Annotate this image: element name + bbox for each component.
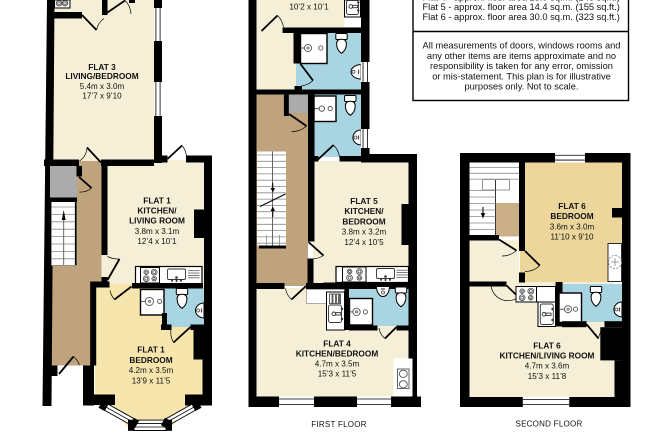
svg-text:or mis-statement. This plan is: or mis-statement. This plan is for illus… [432, 71, 611, 81]
svg-text:LIVING ROOM: LIVING ROOM [129, 216, 185, 226]
svg-text:4.7m x 3.5m: 4.7m x 3.5m [315, 359, 360, 368]
svg-text:5.4m x 3.0m: 5.4m x 3.0m [80, 82, 125, 91]
svg-text:4.7m x 3.6m: 4.7m x 3.6m [525, 362, 570, 371]
svg-text:12’4 x 10’5: 12’4 x 10’5 [344, 238, 384, 247]
svg-text:purposes only. Not to scale.: purposes only. Not to scale. [464, 82, 578, 92]
svg-text:FLAT 1: FLAT 1 [143, 195, 171, 205]
svg-text:FIRST FLOOR: FIRST FLOOR [311, 420, 367, 429]
svg-text:LIVING/BEDROOM: LIVING/BEDROOM [65, 71, 138, 81]
svg-text:3.8m x 3.2m: 3.8m x 3.2m [342, 228, 387, 237]
svg-text:BEDROOM: BEDROOM [342, 216, 385, 226]
svg-text:3.8m x 3.1m: 3.8m x 3.1m [135, 227, 180, 236]
svg-text:any other items are items appr: any other items are items approximate an… [427, 51, 616, 61]
svg-text:11’10 x 9’10: 11’10 x 9’10 [550, 233, 594, 242]
svg-text:SECOND FLOOR: SECOND FLOOR [515, 420, 582, 429]
svg-text:15’3 x 11’8: 15’3 x 11’8 [528, 372, 567, 381]
svg-text:17’7 x 9’10: 17’7 x 9’10 [82, 91, 122, 100]
svg-text:FLAT 6: FLAT 6 [533, 340, 561, 350]
svg-text:12’4 x 10’1: 12’4 x 10’1 [137, 237, 177, 246]
svg-text:FLAT 1: FLAT 1 [137, 345, 165, 355]
svg-text:responsibility is taken for an: responsibility is taken for any error, o… [430, 61, 613, 71]
svg-text:All measurements of doors, win: All measurements of doors, windows rooms… [423, 41, 621, 51]
svg-text:KITCHEN/: KITCHEN/ [344, 206, 384, 216]
svg-text:BEDROOM: BEDROOM [550, 211, 593, 221]
svg-text:BEDROOM: BEDROOM [129, 355, 172, 365]
svg-text:4.2m x 3.5m: 4.2m x 3.5m [129, 366, 174, 375]
svg-text:Flat 5 - approx. floor area 14: Flat 5 - approx. floor area 14.4 sq.m. (… [423, 2, 620, 12]
svg-text:KITCHEN/: KITCHEN/ [137, 206, 177, 216]
svg-text:FLAT 5: FLAT 5 [350, 196, 378, 206]
svg-text:FLAT 6: FLAT 6 [558, 201, 586, 211]
svg-text:KITCHEN/LIVING ROOM: KITCHEN/LIVING ROOM [500, 351, 595, 361]
svg-text:3.6m x 3.0m: 3.6m x 3.0m [550, 222, 595, 231]
svg-text:FLAT 4: FLAT 4 [323, 339, 351, 349]
svg-text:KITCHEN/BEDROOM: KITCHEN/BEDROOM [296, 349, 379, 359]
svg-text:10’2 x 10’1: 10’2 x 10’1 [289, 3, 329, 12]
svg-text:Flat 6 - approx. floor area 30: Flat 6 - approx. floor area 30.0 sq.m. (… [423, 12, 620, 22]
svg-text:13’9 x 11’5: 13’9 x 11’5 [132, 376, 171, 385]
svg-text:15’3 x 11’5: 15’3 x 11’5 [318, 369, 357, 378]
